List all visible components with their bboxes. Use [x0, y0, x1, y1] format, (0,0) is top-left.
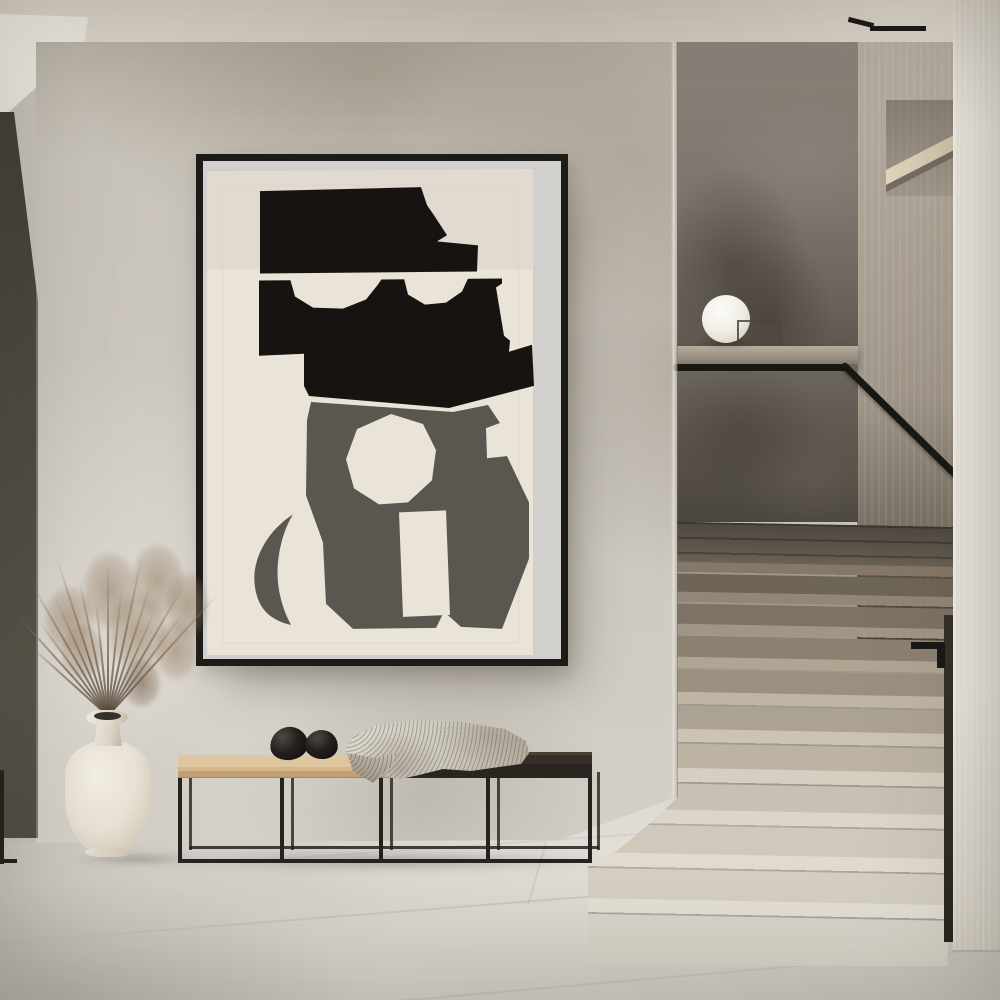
bench-leg [379, 778, 383, 862]
bench-leg [497, 772, 500, 850]
bench-leg [486, 778, 490, 862]
left-console-frame [0, 859, 17, 863]
bench-leg [390, 772, 393, 850]
handrail-bracket [911, 642, 945, 668]
stair-step [578, 898, 949, 969]
bench-leg [291, 772, 294, 850]
wall-corner-edge [671, 42, 678, 798]
stair-back-wall [677, 42, 858, 350]
framed-abstract-poster [196, 154, 568, 666]
interior-scene [0, 0, 1000, 1000]
vase-foot [85, 847, 131, 857]
bench-leg [280, 778, 284, 862]
bench-lower-rail [178, 859, 592, 863]
bench-leg [588, 778, 592, 862]
grout-line [0, 891, 647, 945]
art-shape-cream-slot [399, 510, 450, 616]
bench-lower-rail [189, 846, 599, 849]
grass-stem [107, 593, 218, 716]
vase-neck [94, 722, 122, 746]
vase-with-dried-grass [28, 520, 228, 870]
upper-landing-handrail [848, 16, 928, 32]
white-pillar [953, 0, 1000, 952]
handrail-segment [870, 26, 926, 31]
staircase [677, 42, 956, 962]
left-console-frame [0, 770, 4, 864]
metal-bench [176, 715, 600, 880]
vase-mouth [94, 712, 121, 720]
stair-step [579, 852, 950, 905]
stair-half-wall [677, 364, 858, 522]
bench-leg [597, 772, 600, 850]
vase-body [65, 741, 151, 853]
poster-art [203, 161, 561, 659]
small-stand [737, 320, 781, 346]
parapet-ledge [677, 346, 858, 366]
handrail-horizontal [673, 364, 847, 371]
